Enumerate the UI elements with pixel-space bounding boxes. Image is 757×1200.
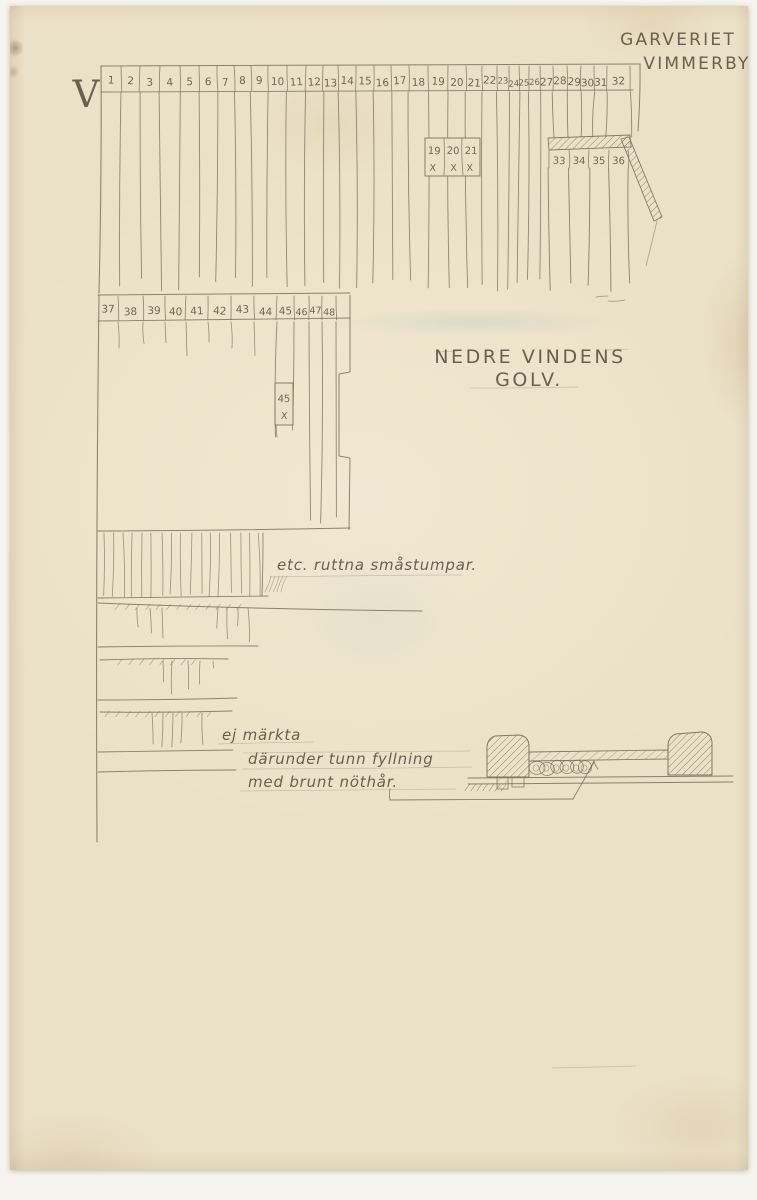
board-number: 35 [593, 156, 606, 167]
board-number: 45 [278, 394, 291, 405]
board-number: 31 [594, 77, 608, 90]
x-mark: X [466, 163, 473, 174]
board-number: 12 [307, 76, 321, 89]
note-filling-line-2: med brunt nöthår. [248, 773, 398, 791]
patch-boards-33-36: 33343536 [548, 135, 662, 291]
board-number: 27 [540, 76, 554, 88]
board-number: 21 [467, 77, 481, 90]
board-number: 48 [323, 307, 335, 318]
board-number: 20 [450, 77, 464, 89]
board-number: 23 [497, 76, 508, 86]
title-line-1: GARVERIET [620, 30, 736, 50]
title-line-2: VIMMERBY [643, 54, 750, 74]
x-mark: X [450, 163, 457, 174]
board-number: 2 [127, 75, 134, 87]
note-unmarked: ej märkta [222, 726, 301, 744]
x-mark: X [429, 163, 436, 174]
joist-cross-section-detail [465, 732, 733, 791]
board-number: 13 [324, 77, 338, 89]
board-number: 21 [465, 146, 478, 157]
rotten-stump-band [98, 533, 287, 598]
board-number: 46 [295, 307, 307, 318]
board-number: 47 [309, 305, 321, 316]
lower-strips [98, 603, 422, 772]
board-number: 4 [166, 77, 174, 89]
board-number: 30 [581, 77, 594, 89]
board-number: 26 [529, 78, 540, 88]
pencil-drawing: 1234567891011121314151617181920212223242… [0, 0, 757, 1200]
board-number: 37 [101, 303, 115, 315]
board-number: 11 [289, 76, 303, 89]
board-number: 29 [567, 76, 581, 89]
board-number: 15 [358, 75, 372, 87]
board-number: 39 [147, 305, 160, 317]
patch-board-45: 45X [275, 383, 293, 437]
board-number: 36 [612, 156, 625, 167]
board-number: 41 [190, 305, 204, 317]
floor-section-upper: 1234567891011121314151617181920212223242… [99, 64, 640, 301]
board-number: 45 [279, 305, 293, 317]
board-number: 10 [271, 76, 285, 88]
board-number: 3 [146, 76, 153, 88]
board-number: 17 [393, 75, 407, 88]
board-number: 38 [124, 306, 138, 318]
board-number: 6 [204, 76, 212, 88]
board-number: 22 [483, 74, 497, 86]
board-number: 1 [107, 74, 114, 86]
board-number: 14 [340, 75, 354, 88]
board-number: 44 [259, 306, 273, 318]
board-number: 40 [169, 306, 183, 318]
board-number: 43 [235, 304, 249, 316]
sheet-letter: V [72, 73, 101, 116]
scanned-drawing-page: 1234567891011121314151617181920212223242… [0, 0, 757, 1200]
board-number: 34 [573, 156, 586, 167]
patch-boards-19-21: 19X20X21X [425, 138, 480, 176]
board-number: 32 [612, 75, 626, 87]
note-filling-line-1: därunder tunn fyllning [248, 750, 434, 768]
board-number: 25 [518, 78, 529, 88]
board-number: 7 [222, 77, 229, 89]
board-number: 28 [553, 75, 567, 87]
x-mark: X [281, 411, 289, 422]
board-number: 9 [256, 75, 263, 87]
note-rotten-stumps: etc. ruttna småstumpar. [277, 556, 477, 574]
faint-guide-lines [218, 349, 636, 1068]
caption-line-2: GOLV. [495, 369, 563, 391]
board-number: 19 [427, 146, 440, 158]
board-number: 16 [375, 77, 389, 90]
caption-line-1: NEDRE VINDENS [434, 346, 626, 368]
board-number: 18 [412, 77, 426, 89]
board-number: 5 [186, 76, 193, 88]
board-number: 8 [239, 75, 246, 87]
board-number: 20 [447, 146, 460, 157]
board-number: 42 [213, 305, 227, 318]
board-number: 19 [431, 76, 445, 89]
board-number: 33 [552, 156, 565, 168]
